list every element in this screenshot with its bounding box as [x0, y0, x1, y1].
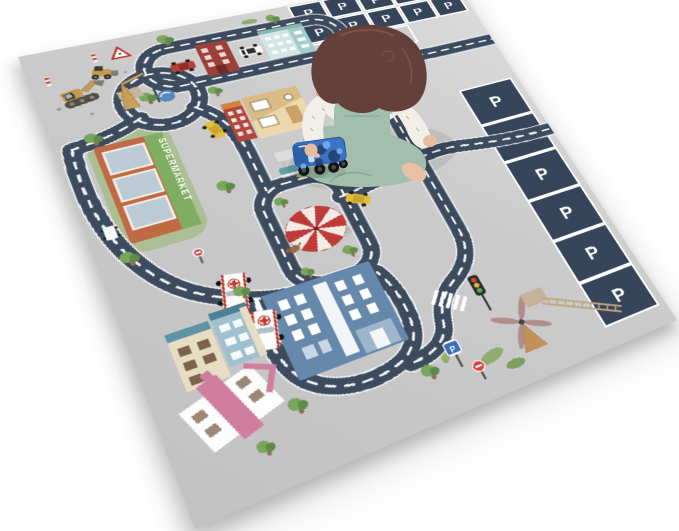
play-mat: P P P P P P P P P P P P P	[18, 0, 677, 529]
product-photo: P P P P P P P P P P P P P	[0, 0, 679, 531]
play-mat-artwork: P P P P P P P P P P P P P	[18, 0, 677, 529]
